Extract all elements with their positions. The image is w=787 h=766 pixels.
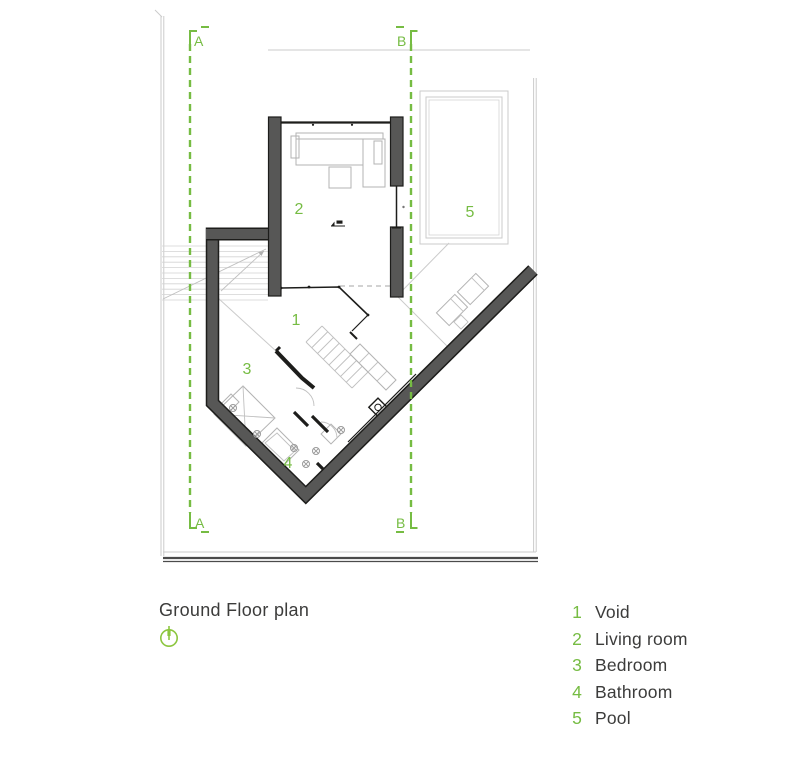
section-label-a-bottom: A bbox=[195, 515, 205, 531]
door-swing-arc bbox=[296, 388, 314, 406]
room-label-bathroom: 4 bbox=[284, 455, 293, 472]
legend-label: Living room bbox=[595, 629, 688, 650]
legend-label: Pool bbox=[595, 708, 631, 729]
section-label-a-top: A bbox=[194, 33, 204, 49]
interior-stairs bbox=[306, 326, 368, 388]
section-label-b-top: B bbox=[397, 33, 406, 49]
elevation-marker bbox=[331, 221, 345, 227]
page: A A B B 1 2 3 4 5 Ground Floor plan 1 bbox=[0, 0, 787, 766]
legend-item: 1 Void bbox=[570, 602, 688, 629]
room-label-living: 2 bbox=[295, 201, 304, 218]
room-label-void: 1 bbox=[292, 312, 301, 329]
legend-item: 5 Pool bbox=[570, 708, 688, 735]
legend-item: 3 Bedroom bbox=[570, 655, 688, 682]
legend-label: Void bbox=[595, 602, 630, 623]
legend-number: 3 bbox=[570, 655, 582, 676]
pool bbox=[420, 91, 508, 244]
legend-number: 1 bbox=[570, 602, 582, 623]
legend-item: 4 Bathroom bbox=[570, 682, 688, 709]
room-label-bedroom: 3 bbox=[243, 361, 252, 378]
legend-item: 2 Living room bbox=[570, 629, 688, 656]
legend-label: Bedroom bbox=[595, 655, 667, 676]
legend: 1 Void 2 Living room 3 Bedroom 4 Bathroo… bbox=[570, 602, 688, 735]
room-label-pool: 5 bbox=[466, 204, 475, 221]
legend-number: 2 bbox=[570, 629, 582, 650]
sofa bbox=[291, 133, 385, 187]
coffee-table bbox=[329, 167, 351, 188]
legend-number: 4 bbox=[570, 682, 582, 703]
kitchen-window-line bbox=[348, 374, 416, 442]
legend-label: Bathroom bbox=[595, 682, 672, 703]
exterior-walls bbox=[206, 117, 533, 495]
legend-number: 5 bbox=[570, 708, 582, 729]
section-label-b-bottom: B bbox=[396, 515, 405, 531]
page-title: Ground Floor plan bbox=[159, 600, 309, 621]
overhang-lines bbox=[218, 243, 449, 351]
north-arrow-icon bbox=[158, 624, 182, 650]
